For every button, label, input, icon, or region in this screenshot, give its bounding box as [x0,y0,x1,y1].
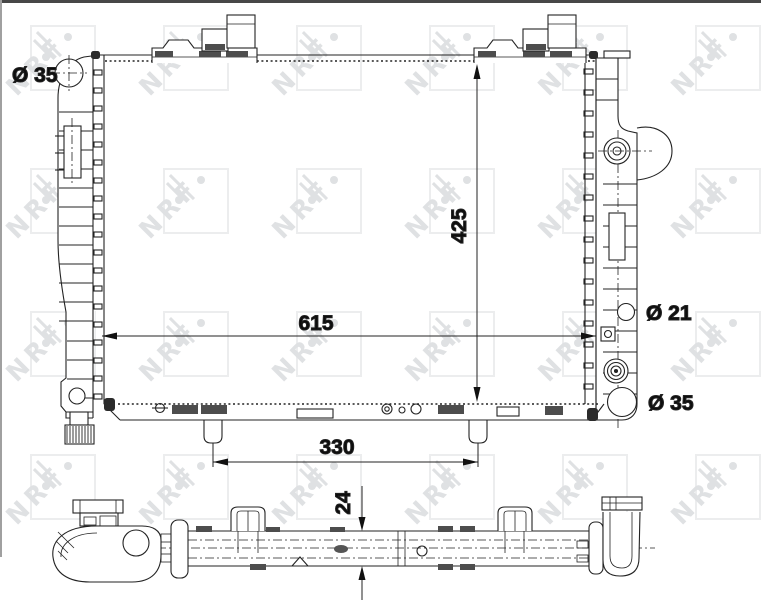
threaded-port [604,359,628,383]
dim-width-value: 615 [298,312,333,335]
dim-thickness-value: 24 [332,491,355,515]
dim-pin-spacing-value: 330 [319,436,354,459]
dim-pin-spacing: 330 [213,436,478,467]
mount-pin-left [204,420,222,443]
dim-core-thickness: 24 [332,486,381,600]
drawing-sheet: NRFNRFNRFNRFNRFNRFNRFNRFNRFNRFNRFNRFNRFN… [0,0,761,600]
dim-core-height: 425 [448,64,481,402]
label-inlet-diameter: Ø 35 [12,64,58,87]
right-tank [584,51,672,428]
top-bracket-right [474,15,586,63]
radiator-core [91,51,604,443]
port-21 [618,304,635,321]
dim-height-value: 425 [448,208,471,243]
dim-core-width: 615 [102,312,596,340]
top-bracket-left [152,15,257,63]
label-upper-port-diameter: Ø 21 [646,302,692,325]
outlet-elbow-side [602,497,642,576]
radiator-drawing: 425 615 330 [0,0,761,600]
label-lower-port-diameter: Ø 35 [648,392,694,415]
left-tank [51,55,102,444]
mount-pin-right [469,420,487,443]
inlet-elbow-side [53,526,161,582]
port-35 [608,388,637,417]
sensor-boss [601,327,615,341]
